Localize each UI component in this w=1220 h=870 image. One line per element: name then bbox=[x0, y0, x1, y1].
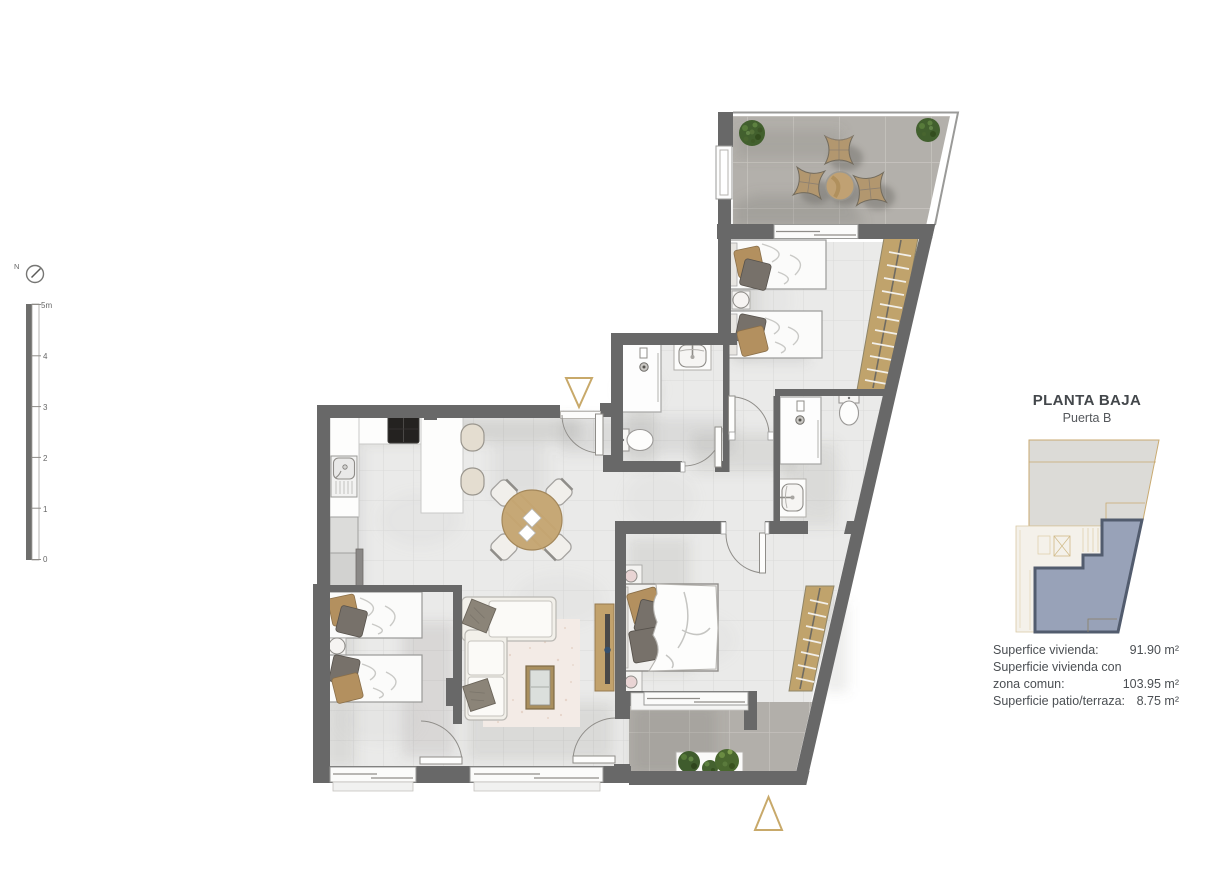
svg-text:103.95 m²: 103.95 m² bbox=[1123, 677, 1179, 691]
svg-text:PLANTA BAJA: PLANTA BAJA bbox=[1033, 392, 1142, 409]
svg-text:zona comun:: zona comun: bbox=[993, 677, 1065, 691]
svg-text:8.75 m²: 8.75 m² bbox=[1137, 694, 1179, 708]
svg-text:91.90 m²: 91.90 m² bbox=[1130, 643, 1179, 657]
svg-text:0: 0 bbox=[43, 555, 48, 564]
svg-text:Superficie patio/terraza:: Superficie patio/terraza: bbox=[993, 694, 1125, 708]
svg-text:Puerta B: Puerta B bbox=[1063, 411, 1112, 425]
svg-text:4: 4 bbox=[43, 352, 48, 361]
svg-text:1: 1 bbox=[43, 505, 48, 514]
svg-text:Superfice vivienda:: Superfice vivienda: bbox=[993, 643, 1099, 657]
svg-text:N: N bbox=[14, 262, 19, 271]
svg-text:5m: 5m bbox=[41, 301, 52, 310]
svg-text:2: 2 bbox=[43, 454, 48, 463]
svg-text:3: 3 bbox=[43, 403, 48, 412]
svg-text:Superficie vivienda con: Superficie vivienda con bbox=[993, 660, 1122, 674]
